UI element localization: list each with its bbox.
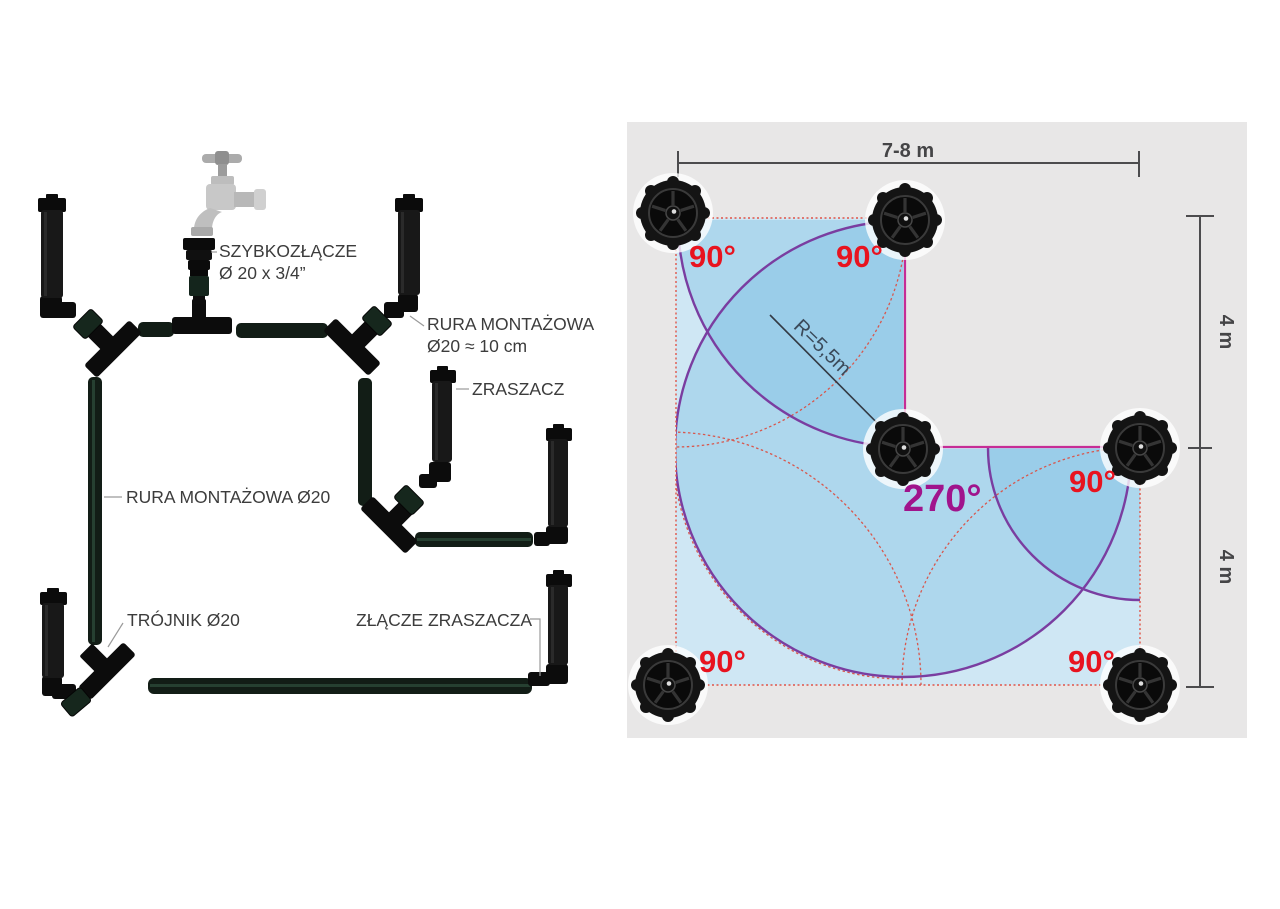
elbow-mid-right bbox=[534, 526, 568, 546]
sprinkler-plan-icon-bottom-left bbox=[628, 645, 708, 725]
label-mounting-pipe-short-line2: Ø20 ≈ 10 cm bbox=[427, 336, 527, 356]
height-upper-label: 4 m bbox=[1215, 315, 1237, 349]
label-sprinkler-connector: ZŁĄCZE ZRASZACZA bbox=[356, 610, 532, 630]
label-mounting-pipe-short-line1: RURA MONTAŻOWA bbox=[427, 314, 595, 334]
height-lower-label: 4 m bbox=[1215, 550, 1237, 584]
label-sprinkler: ZRASZACZ bbox=[472, 379, 565, 399]
popup-sprinkler-4 bbox=[546, 424, 572, 527]
elbow-top-right bbox=[384, 294, 418, 318]
popup-sprinkler-1 bbox=[38, 194, 66, 298]
popup-sprinkler-3 bbox=[430, 366, 456, 462]
page: SZYBKOZŁĄCZE Ø 20 x 3/4” RURA MONTAŻOWA … bbox=[0, 0, 1280, 909]
mounting-pipes bbox=[88, 322, 533, 694]
quick-connector-illustration bbox=[183, 238, 215, 304]
center-tee-connector bbox=[172, 299, 232, 334]
angle-label-bottom-left: 90° bbox=[699, 644, 746, 679]
width-dimension-label: 7-8 m bbox=[882, 140, 934, 162]
label-quick-connector-line2: Ø 20 x 3/4” bbox=[219, 263, 306, 283]
popup-sprinkler-5 bbox=[40, 588, 67, 678]
angle-label-bottom-right: 90° bbox=[1068, 644, 1115, 679]
angle-label-top-left: 90° bbox=[689, 239, 736, 274]
angle-label-center: 270° bbox=[903, 478, 982, 520]
site-plan-diagram: R=5,5m 7-8 m 4 m 4 m 90° bbox=[627, 122, 1247, 738]
label-quick-connector-line1: SZYBKOZŁĄCZE bbox=[219, 241, 357, 261]
popup-sprinkler-2 bbox=[395, 194, 423, 295]
faucet-illustration bbox=[191, 151, 266, 236]
sprinkler-plan-icon-center bbox=[863, 409, 943, 489]
elbow-top-left bbox=[40, 296, 76, 318]
tee-top-left bbox=[69, 305, 142, 378]
label-tee: TRÓJNIK Ø20 bbox=[127, 609, 240, 630]
elbow-bottom-right bbox=[528, 664, 568, 686]
angle-label-top-middle: 90° bbox=[836, 239, 883, 274]
popup-sprinkler-6 bbox=[546, 570, 572, 665]
angle-label-middle-right: 90° bbox=[1069, 464, 1116, 499]
assembly-diagram: SZYBKOZŁĄCZE Ø 20 x 3/4” RURA MONTAŻOWA … bbox=[0, 0, 620, 909]
label-mounting-pipe: RURA MONTAŻOWA Ø20 bbox=[126, 487, 330, 507]
elbow-mid bbox=[419, 462, 451, 488]
